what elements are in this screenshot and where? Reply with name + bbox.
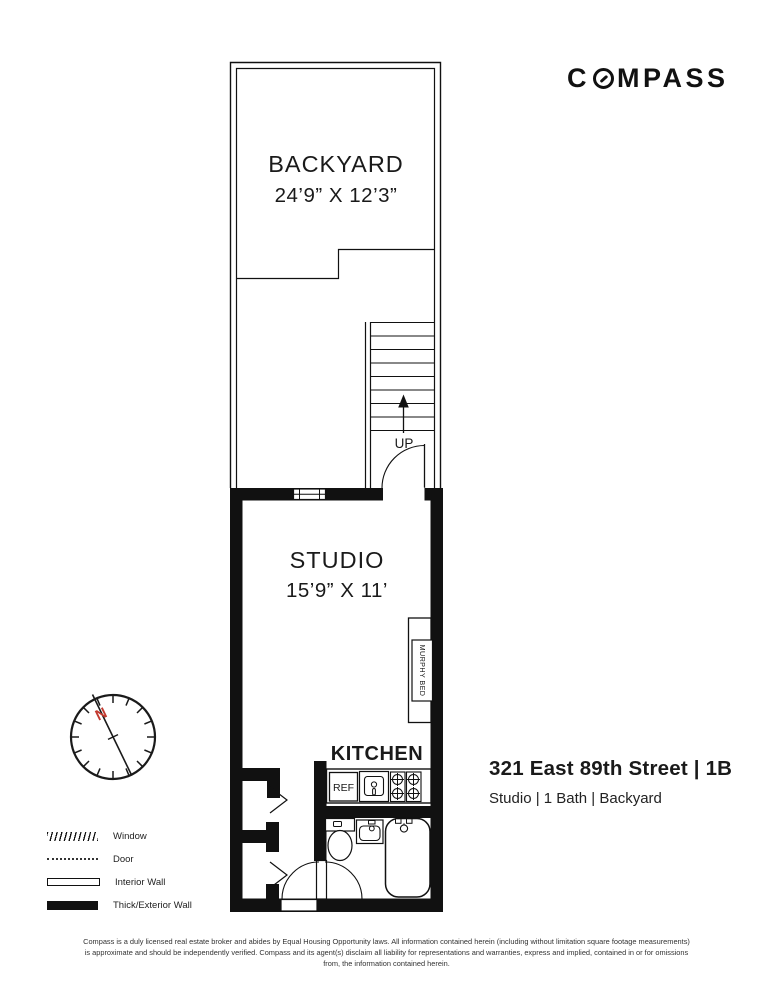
north-label: N (93, 704, 110, 724)
stairs: UP (366, 322, 435, 488)
legend: Window Door Interior Wall Thick/Exterior… (47, 829, 192, 921)
hall-door-arc (282, 862, 319, 899)
bathroom (326, 819, 431, 898)
door-leaf (317, 861, 327, 900)
hall-bath-doors (282, 861, 362, 900)
bathtub (386, 819, 431, 898)
legend-row-thick-wall: Thick/Exterior Wall (47, 898, 192, 912)
patio-step-line (237, 250, 434, 279)
legend-row-door: Door (47, 852, 192, 866)
bath-door-arc (325, 862, 362, 899)
kitchen-label: KITCHEN (331, 743, 423, 765)
studio-dimensions: 15’9” X 11’ (286, 579, 388, 602)
legend-row-window: Window (47, 829, 192, 843)
listing-info: 321 East 89th Street | 1B Studio | 1 Bat… (489, 757, 732, 807)
logo-text-right: MPASS (617, 63, 729, 94)
compass-o-icon (593, 68, 614, 89)
murphy-bed: MURPHY BED (409, 618, 433, 723)
legend-label: Thick/Exterior Wall (113, 900, 192, 911)
floorplan-page: UP (0, 0, 773, 1000)
listing-subtitle: Studio | 1 Bath | Backyard (489, 790, 732, 807)
studio-label: STUDIO (290, 547, 385, 573)
kitchen-sink (360, 772, 389, 802)
door-swatch-icon (47, 858, 98, 860)
compass-rose-icon: N (68, 692, 158, 782)
disclaimer-text: Compass is a duly licensed real estate b… (83, 936, 691, 969)
listing-title: 321 East 89th Street | 1B (489, 757, 732, 781)
legend-row-interior-wall: Interior Wall (47, 875, 192, 889)
legend-label: Interior Wall (115, 877, 165, 888)
studio-window (294, 489, 326, 500)
up-label: UP (395, 436, 414, 451)
backyard-walls (231, 63, 441, 489)
studio-entry-opening (383, 488, 425, 502)
legend-label: Door (113, 854, 134, 865)
kitchen-counter: REF (327, 769, 432, 803)
up-arrow-head (398, 395, 409, 408)
bathroom-sink (357, 820, 384, 844)
interior-wall-swatch-icon (47, 878, 100, 886)
murphy-bed-label: MURPHY BED (418, 645, 427, 697)
ref-label: REF (333, 782, 354, 794)
compass-logo: CMPASS (567, 63, 729, 94)
refrigerator: REF (330, 773, 358, 802)
stair-door-arc (382, 446, 425, 489)
legend-label: Window (113, 831, 147, 842)
logo-text-left: C (567, 63, 590, 94)
bottom-wall-opening (281, 900, 317, 912)
backyard-label: BACKYARD (268, 151, 404, 177)
toilet (326, 819, 355, 861)
backyard-dimensions: 24’9” X 12’3” (275, 184, 398, 207)
thick-wall-swatch-icon (47, 901, 98, 910)
window-swatch-icon (47, 832, 98, 841)
